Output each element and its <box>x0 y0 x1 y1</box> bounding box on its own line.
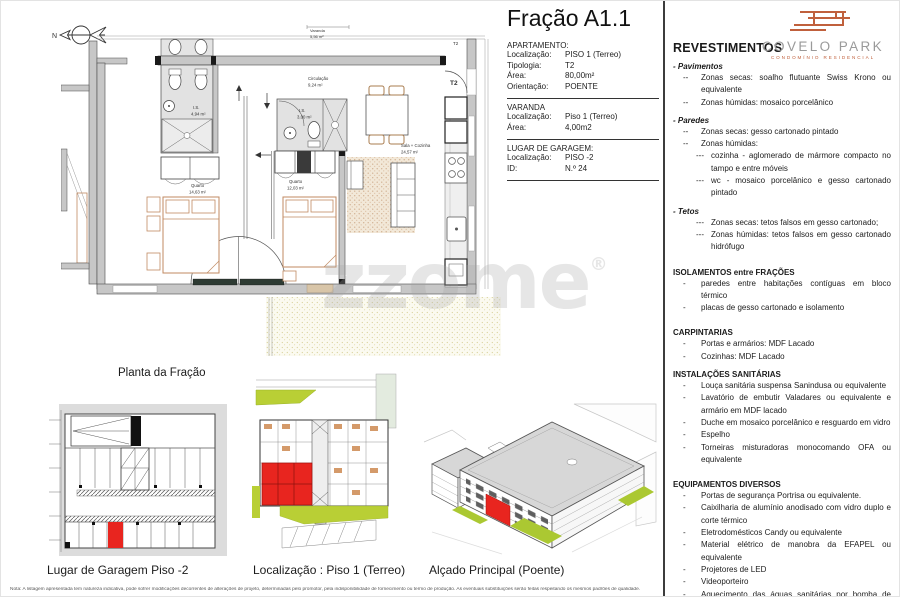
armchair <box>347 161 363 189</box>
is1-label: I.S. <box>193 105 199 110</box>
spec-item: -Aquecimento das águas sanitárias por bo… <box>669 589 897 597</box>
oven <box>445 121 467 143</box>
spec-bullet: - <box>683 417 686 429</box>
fridge <box>445 97 467 119</box>
spec-item: ---wc - mosaico porcelânico e gesso cart… <box>669 175 897 200</box>
sala-label: Sala + Cozinha <box>401 143 431 148</box>
panel-divider <box>663 1 665 597</box>
living-dining <box>347 86 415 233</box>
brand-subtitle: CONDOMÍNIO RESIDENCIAL <box>753 55 893 60</box>
is2-area: 3,00 m² <box>297 115 312 120</box>
spec-item: -Espelho <box>669 429 897 441</box>
info-value: 4,00m2 <box>565 123 592 134</box>
spec-item: -Duche em mosaico porcelânico e resguard… <box>669 417 897 429</box>
wardrobes <box>161 151 335 184</box>
spec-bullet: - <box>683 338 686 350</box>
axonometric-view <box>422 402 657 557</box>
info-label: Localização: <box>507 50 565 61</box>
spec-text: Torneiras misturadoras monocomando OFA o… <box>701 443 891 464</box>
spec-item: -Material elétrico de manobra da EFAPEL … <box>669 539 897 564</box>
spec-text: Eletrodomésticos Candy ou equivalente <box>701 528 842 537</box>
spec-text: Louça sanitária suspensa Sanindusa ou eq… <box>701 381 886 390</box>
bathroom-1 <box>161 65 218 153</box>
info-value: PISO 1 (Terreo) <box>565 50 621 61</box>
spec-item: -Louça sanitária suspensa Sanindusa ou e… <box>669 380 897 392</box>
spec-item: ---Zonas secas: tetos falsos em gesso ca… <box>669 217 897 229</box>
arrow-left-icon <box>255 152 261 158</box>
shower-icon <box>332 122 339 129</box>
watermark: zzome® <box>321 243 606 321</box>
spec-item: -placas de gesso cartonado e isolamento <box>669 302 897 314</box>
arrow-down-icon <box>264 103 270 109</box>
info-value: PISO -2 <box>565 153 593 164</box>
spec-item: --Zonas secas: soalho flutuante Swiss Kr… <box>669 72 897 97</box>
garagem-rows: Localização:PISO -2ID:N.º 24 <box>507 153 659 174</box>
spec-bullet: - <box>683 490 686 502</box>
highlighted-parking-space <box>108 522 123 548</box>
info-label: Área: <box>507 123 565 134</box>
spec-bullet: - <box>683 564 686 576</box>
brand-name: COVELO PARK <box>753 39 893 54</box>
roof-vent <box>567 459 577 465</box>
info-value: N.º 24 <box>565 164 587 175</box>
bench <box>283 271 296 281</box>
bathroom-2 <box>277 99 347 151</box>
page-title: Fração A1.1 <box>507 5 659 32</box>
brand-logo: COVELO PARK CONDOMÍNIO RESIDENCIAL <box>753 4 893 60</box>
arrow-up-icon <box>236 85 242 91</box>
circulacao-area: 9,24 m² <box>308 83 323 88</box>
pillow <box>286 200 308 212</box>
spec-text: placas de gesso cartonado e isolamento <box>701 303 844 312</box>
location-plan <box>252 370 400 560</box>
spec-section-title: ISOLAMENTOS entre FRAÇÕES <box>669 267 897 278</box>
info-row: ID:N.º 24 <box>507 164 659 175</box>
sala-area: 24,57 m² <box>401 150 419 155</box>
info-label: ID: <box>507 164 565 175</box>
info-row: Localização:Piso 1 (Terreo) <box>507 112 659 123</box>
spec-bullet: - <box>683 576 686 588</box>
spec-bullet: --- <box>696 229 704 241</box>
chair <box>369 86 384 95</box>
spec-section: INSTALAÇÕES SANITÁRIAS-Louça sanitária s… <box>669 369 897 466</box>
spec-bullet: - <box>683 589 686 597</box>
chair <box>147 253 160 270</box>
divider <box>507 98 659 99</box>
spec-text: Projetores de LED <box>701 565 766 574</box>
is1-area: 4,94 m² <box>191 112 206 117</box>
info-row: Localização:PISO 1 (Terreo) <box>507 50 659 61</box>
spec-text: paredes entre habitações contíguas em bl… <box>701 279 891 300</box>
t2-top-label: T2 <box>453 41 459 46</box>
spec-bullet: - <box>683 380 686 392</box>
stove <box>445 153 467 183</box>
spec-bullet: -- <box>683 126 688 138</box>
dining-table <box>366 95 408 135</box>
datasheet-page: N <box>0 0 900 597</box>
info-label: Localização: <box>507 112 565 123</box>
spec-text: Portas e armários: MDF Lacado <box>701 339 814 348</box>
spec-text: Zonas secas: soalho flutuante Swiss Kron… <box>701 73 891 94</box>
toilet-icon <box>308 122 320 139</box>
spec-item: -Lavatório de embutir Valadares ou equiv… <box>669 392 897 417</box>
green-area <box>280 506 388 524</box>
info-label: Orientação: <box>507 82 565 93</box>
info-row: Área:80,00m² <box>507 71 659 82</box>
spec-section-title: - Pavimentos <box>669 61 897 72</box>
info-value: POENTE <box>565 82 598 93</box>
spec-item: ---cozinha - aglomerado de mármore compa… <box>669 150 897 175</box>
nightstand <box>147 197 160 212</box>
spec-text: Videoporteiro <box>701 577 748 586</box>
spec-text: Zonas secas: tetos falsos em gesso carto… <box>711 218 878 227</box>
garage-caption: Lugar de Garagem Piso -2 <box>47 563 188 577</box>
spec-bullet: -- <box>683 72 688 84</box>
pillow <box>311 200 333 212</box>
spec-bullet: --- <box>696 175 704 187</box>
spec-section: - Tetos---Zonas secas: tetos falsos em g… <box>669 206 897 254</box>
info-row: Orientação:POENTE <box>507 82 659 93</box>
spec-section-title: INSTALAÇÕES SANITÁRIAS <box>669 369 897 380</box>
spec-bullet: --- <box>696 217 704 229</box>
bedroom-1 <box>147 197 219 273</box>
info-value: T2 <box>565 61 574 72</box>
spec-bullet: - <box>683 392 686 404</box>
garagem-heading: LUGAR DE GARAGEM: <box>507 144 659 153</box>
nightstand <box>147 216 160 231</box>
spec-item: --Zonas húmidas: <box>669 138 897 150</box>
spec-bullet: - <box>683 351 686 363</box>
varanda-area: 5,56 m² <box>310 34 324 39</box>
spec-item: -Portas e armários: MDF Lacado <box>669 338 897 350</box>
info-value: 80,00m² <box>565 71 594 82</box>
divider <box>507 139 659 140</box>
wheel-stop-band <box>65 516 215 522</box>
info-label: Área: <box>507 71 565 82</box>
spec-text: Zonas húmidas: <box>701 139 758 148</box>
registered-mark: ® <box>590 254 606 275</box>
spec-section-title: EQUIPAMENTOS DIVERSOS <box>669 479 897 490</box>
is2-label: I.S. <box>299 108 305 113</box>
spec-item: -Portas de segurança Portrisa ou equival… <box>669 490 897 502</box>
logo-chair-icon <box>788 4 858 34</box>
spec-bullet: - <box>683 302 686 314</box>
info-row: Localização:PISO -2 <box>507 153 659 164</box>
spec-panel: COVELO PARK CONDOMÍNIO RESIDENCIAL REVES… <box>669 1 897 597</box>
spec-item: -Cozinhas: MDF Lacado <box>669 351 897 363</box>
specs-sections: - Pavimentos--Zonas secas: soalho flutua… <box>669 61 897 597</box>
spec-text: Material elétrico de manobra da EFAPEL o… <box>701 540 891 561</box>
spec-item: -Eletrodomésticos Candy ou equivalente <box>669 527 897 539</box>
spec-section-title: CARPINTARIAS <box>669 327 897 338</box>
green-area <box>256 390 316 405</box>
pillow <box>192 200 215 213</box>
spec-text: Caixilharia de alumínio anodisado com vi… <box>701 503 891 524</box>
spec-text: Zonas húmidas: tetos falsos em gesso car… <box>711 230 891 251</box>
spec-bullet: - <box>683 442 686 454</box>
spec-bullet: - <box>683 539 686 551</box>
info-label: Localização: <box>507 153 565 164</box>
spec-section-title: - Tetos <box>669 206 897 217</box>
circulacao-label: Circulação <box>308 76 329 81</box>
spec-text: wc - mosaico porcelânico e gesso cartona… <box>711 176 891 197</box>
ramp <box>71 416 141 446</box>
apartamento-rows: Localização:PISO 1 (Terreo)Tipologia:T2Á… <box>507 50 659 92</box>
spec-bullet: --- <box>696 150 704 162</box>
chair <box>369 135 384 144</box>
spec-section: - Paredes--Zonas secas: gesso cartonado … <box>669 115 897 200</box>
spec-text: Portas de segurança Portrisa ou equivale… <box>701 491 861 500</box>
spec-item: -Caixilharia de alumínio anodisado com v… <box>669 502 897 527</box>
garage-plan <box>49 402 229 564</box>
north-label: N <box>52 33 57 40</box>
divider <box>507 180 659 181</box>
varanda-heading: VARANDA <box>507 103 659 112</box>
spec-bullet: -- <box>683 138 688 150</box>
spec-text: Zonas secas: gesso cartonado pintado <box>701 127 838 136</box>
highlighted-fraction <box>262 463 312 505</box>
spec-bullet: - <box>683 527 686 539</box>
spec-item: ---Zonas húmidas: tetos falsos em gesso … <box>669 229 897 254</box>
surface-parking <box>282 520 376 548</box>
quarto1-area: 14,63 m² <box>189 190 207 195</box>
spec-item: -Projetores de LED <box>669 564 897 576</box>
quarto1-label: Quarto <box>191 183 205 188</box>
info-row: Tipologia:T2 <box>507 61 659 72</box>
t2-entrance-label: T2 <box>450 80 458 87</box>
stair-core <box>121 448 149 490</box>
spec-text: Lavatório de embutir Valadares ou equiva… <box>701 393 891 414</box>
location-caption: Localização : Piso 1 (Terreo) <box>253 563 405 577</box>
spec-section-title: - Paredes <box>669 115 897 126</box>
spec-item: --Zonas secas: gesso cartonado pintado <box>669 126 897 138</box>
pillow <box>166 200 189 213</box>
spec-section: - Pavimentos--Zonas secas: soalho flutua… <box>669 61 897 109</box>
info-row: Área:4,00m2 <box>507 123 659 134</box>
spec-section: CARPINTARIAS-Portas e armários: MDF Laca… <box>669 327 897 363</box>
main-building <box>460 422 644 548</box>
spec-bullet: -- <box>683 97 688 109</box>
varanda-rows: Localização:Piso 1 (Terreo)Área:4,00m2 <box>507 112 659 133</box>
balcony-strip <box>97 25 485 56</box>
spec-text: Aquecimento das águas sanitárias por bom… <box>701 590 891 597</box>
spec-text: Zonas húmidas: mosaico porcelânico <box>701 98 833 107</box>
disclaimer-note: Nota: A listagem apresentada tem naturez… <box>10 587 658 592</box>
spec-section: ISOLAMENTOS entre FRAÇÕES-paredes entre … <box>669 267 897 315</box>
spec-text: cozinha - aglomerado de mármore compacto… <box>711 151 891 172</box>
spec-item: --Zonas húmidas: mosaico porcelânico <box>669 97 897 109</box>
spec-item: -paredes entre habitações contíguas em b… <box>669 278 897 303</box>
title-block: Fração A1.1 APARTAMENTO: Localização:PIS… <box>507 5 659 185</box>
info-value: Piso 1 (Terreo) <box>565 112 617 123</box>
spec-section: EQUIPAMENTOS DIVERSOS-Portas de seguranç… <box>669 479 897 597</box>
info-label: Tipologia: <box>507 61 565 72</box>
spec-item: -Videoporteiro <box>669 576 897 588</box>
spec-bullet: - <box>683 502 686 514</box>
spec-item: -Torneiras misturadoras monocomando OFA … <box>669 442 897 467</box>
spec-bullet: - <box>683 429 686 441</box>
elevation-caption: Alçado Principal (Poente) <box>429 563 564 577</box>
quarto2-label: Quarto <box>289 179 303 184</box>
wheel-stop-band <box>77 490 215 496</box>
spec-text: Cozinhas: MDF Lacado <box>701 352 785 361</box>
spec-text: Duche em mosaico porcelânico e resguardo… <box>701 418 890 427</box>
apartamento-heading: APARTAMENTO: <box>507 41 659 50</box>
planta-caption: Planta da Fração <box>118 367 206 379</box>
quarto2-area: 12,03 m² <box>287 186 305 191</box>
chair <box>389 86 404 95</box>
neighbor-unit-fragment <box>61 41 97 284</box>
green-area <box>252 486 260 518</box>
spec-text: Espelho <box>701 430 730 439</box>
varanda-label: Varanda <box>310 28 326 33</box>
spec-bullet: - <box>683 278 686 290</box>
